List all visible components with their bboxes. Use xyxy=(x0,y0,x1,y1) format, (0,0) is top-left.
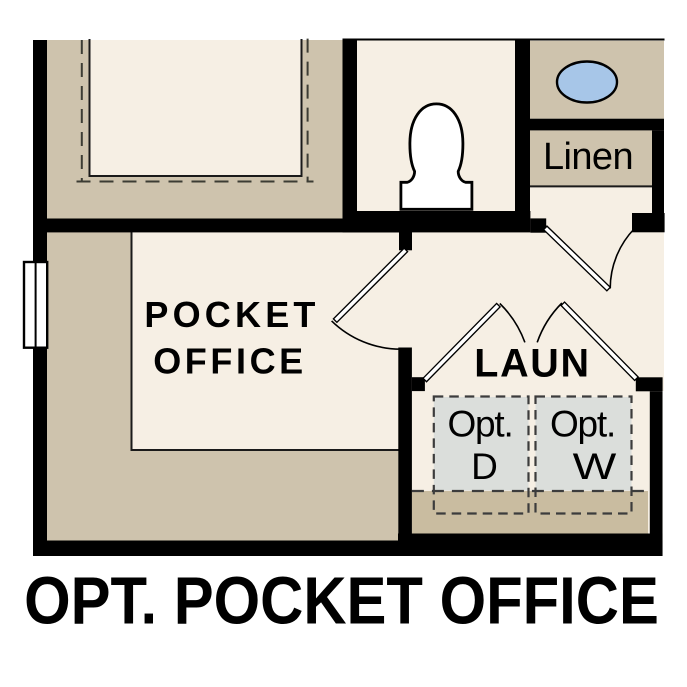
svg-text:D: D xyxy=(471,446,498,487)
svg-text:W: W xyxy=(573,445,617,487)
svg-text:Opt.: Opt. xyxy=(550,404,615,445)
svg-text:Opt.: Opt. xyxy=(447,404,512,445)
svg-text:OFFICE: OFFICE xyxy=(153,341,307,382)
svg-text:Linen: Linen xyxy=(543,136,633,178)
svg-text:LAUN: LAUN xyxy=(474,342,591,386)
svg-text:POCKET: POCKET xyxy=(144,294,319,335)
svg-text:OPT. POCKET OFFICE: OPT. POCKET OFFICE xyxy=(24,564,659,638)
